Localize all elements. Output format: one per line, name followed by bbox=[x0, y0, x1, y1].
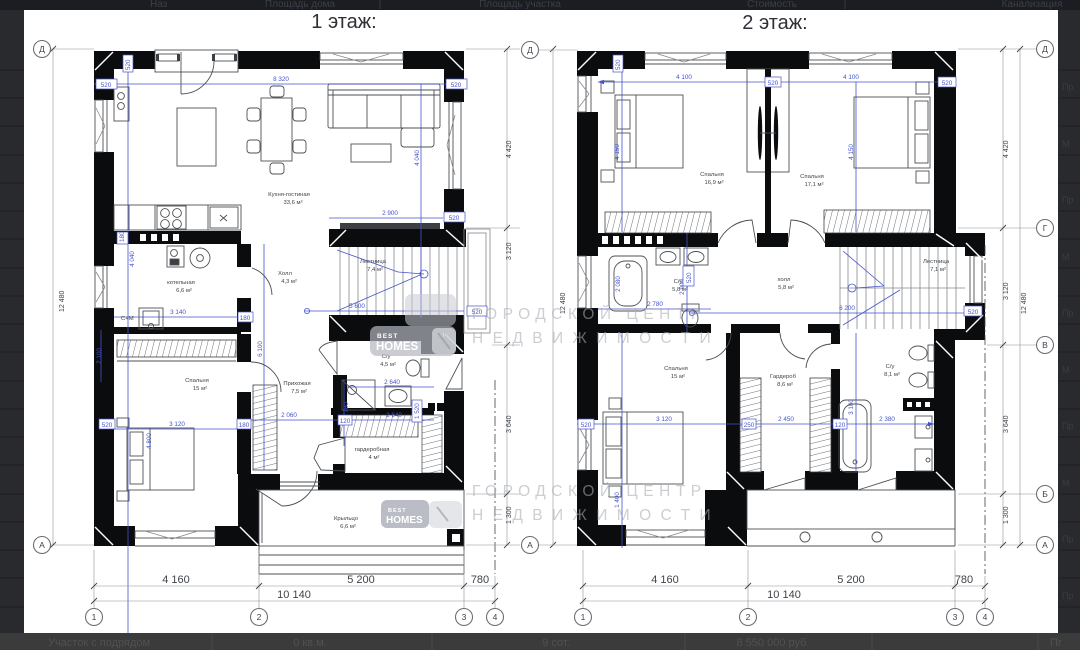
svg-text:120: 120 bbox=[340, 418, 351, 425]
svg-text:12 480: 12 480 bbox=[1021, 292, 1028, 314]
svg-text:НЕДВИЖИМОСТИ: НЕДВИЖИМОСТИ bbox=[472, 507, 720, 524]
svg-text:180: 180 bbox=[119, 231, 126, 242]
svg-text:9 сот.: 9 сот. bbox=[542, 637, 570, 649]
svg-text:8,1 м²: 8,1 м² bbox=[884, 372, 900, 378]
svg-text:2 640: 2 640 bbox=[384, 379, 400, 386]
svg-text:1 этаж:: 1 этаж: bbox=[311, 11, 376, 33]
svg-text:4 100: 4 100 bbox=[843, 74, 859, 81]
svg-text:Д: Д bbox=[39, 44, 45, 54]
svg-text:520: 520 bbox=[449, 215, 460, 222]
svg-text:1 300: 1 300 bbox=[1003, 506, 1010, 524]
svg-text:1: 1 bbox=[92, 612, 97, 622]
svg-text:ГОРОДСКОЙ ЦЕНТР: ГОРОДСКОЙ ЦЕНТР bbox=[472, 482, 707, 500]
svg-text:М: М bbox=[1062, 365, 1070, 375]
svg-text:А: А bbox=[39, 540, 45, 550]
svg-text:4: 4 bbox=[493, 612, 498, 622]
svg-text:М: М bbox=[1062, 478, 1070, 488]
svg-text:520: 520 bbox=[768, 80, 779, 87]
svg-text:12 480: 12 480 bbox=[59, 290, 66, 312]
svg-text:6,6 м²: 6,6 м² bbox=[176, 288, 192, 294]
svg-text:С+М: С+М bbox=[121, 316, 134, 322]
svg-text:520: 520 bbox=[125, 59, 132, 70]
svg-text:3 120: 3 120 bbox=[1003, 282, 1010, 300]
svg-text:4 040: 4 040 bbox=[414, 150, 421, 166]
svg-text:Крыльцо: Крыльцо bbox=[334, 516, 359, 522]
svg-text:Канализация: Канализация bbox=[1002, 0, 1063, 10]
svg-text:Спальня: Спальня bbox=[185, 378, 209, 384]
svg-text:8 550 000 руб.: 8 550 000 руб. bbox=[737, 637, 810, 649]
svg-text:гардеробная: гардеробная bbox=[355, 447, 390, 453]
svg-text:Пр: Пр bbox=[1062, 308, 1073, 318]
svg-text:4,5 м²: 4,5 м² bbox=[380, 362, 396, 368]
svg-text:3 640: 3 640 bbox=[1003, 415, 1010, 433]
svg-text:3 140: 3 140 bbox=[170, 309, 186, 316]
svg-text:8,6 м²: 8,6 м² bbox=[777, 382, 793, 388]
svg-text:BEST: BEST bbox=[377, 333, 398, 340]
svg-text:5 200: 5 200 bbox=[347, 574, 375, 586]
svg-text:2 450: 2 450 bbox=[778, 416, 794, 423]
svg-text:16,9 м²: 16,9 м² bbox=[704, 180, 723, 186]
svg-text:3: 3 bbox=[462, 612, 467, 622]
svg-text:6,6 м²: 6,6 м² bbox=[340, 524, 356, 530]
svg-text:НЕДВИЖИМОСТИ: НЕДВИЖИМОСТИ bbox=[472, 330, 720, 347]
svg-text:5 200: 5 200 bbox=[837, 574, 865, 586]
svg-text:Спальня: Спальня bbox=[664, 366, 688, 372]
svg-text:С/у: С/у bbox=[886, 364, 895, 370]
svg-text:15 м²: 15 м² bbox=[193, 386, 207, 392]
svg-text:520: 520 bbox=[686, 272, 693, 283]
svg-text:2 этаж:: 2 этаж: bbox=[742, 12, 807, 34]
svg-text:1: 1 bbox=[581, 612, 586, 622]
svg-text:4: 4 bbox=[983, 612, 988, 622]
svg-text:3 120: 3 120 bbox=[656, 416, 672, 423]
svg-text:BEST: BEST bbox=[388, 508, 407, 514]
svg-text:Участок с подрядом: Участок с подрядом bbox=[48, 637, 150, 649]
svg-text:520: 520 bbox=[581, 422, 592, 429]
svg-text:Пр: Пр bbox=[1062, 534, 1073, 544]
svg-text:120: 120 bbox=[835, 422, 846, 429]
svg-text:Пр: Пр bbox=[1062, 82, 1073, 92]
svg-text:7,1 м²: 7,1 м² bbox=[930, 267, 946, 273]
svg-text:15 м²: 15 м² bbox=[671, 374, 685, 380]
svg-text:4 150: 4 150 bbox=[848, 144, 855, 160]
svg-text:3 120: 3 120 bbox=[506, 242, 513, 260]
svg-text:2 100: 2 100 bbox=[96, 348, 103, 364]
svg-text:4 160: 4 160 bbox=[162, 574, 190, 586]
svg-text:5,8 м²: 5,8 м² bbox=[778, 285, 794, 291]
svg-text:2 060: 2 060 bbox=[281, 412, 297, 419]
svg-text:А: А bbox=[527, 540, 533, 550]
svg-text:Пр: Пр bbox=[1062, 591, 1073, 601]
svg-text:А: А bbox=[1042, 540, 1048, 550]
svg-text:котельная: котельная bbox=[167, 280, 195, 286]
svg-text:33,6 м²: 33,6 м² bbox=[283, 200, 302, 206]
svg-text:2: 2 bbox=[257, 612, 262, 622]
svg-text:4,3 м²: 4,3 м² bbox=[281, 279, 297, 285]
svg-text:520: 520 bbox=[615, 59, 622, 70]
svg-text:2: 2 bbox=[746, 612, 751, 622]
svg-text:Д: Д bbox=[527, 45, 533, 55]
svg-text:520: 520 bbox=[968, 309, 979, 316]
svg-text:М: М bbox=[1062, 139, 1070, 149]
svg-text:17,1 м²: 17,1 м² bbox=[804, 182, 823, 188]
svg-text:4 800: 4 800 bbox=[146, 433, 153, 449]
svg-text:780: 780 bbox=[955, 574, 973, 586]
svg-text:2 080: 2 080 bbox=[615, 276, 622, 292]
svg-text:250: 250 bbox=[744, 422, 755, 429]
svg-text:М: М bbox=[1062, 252, 1070, 262]
svg-text:HOMES: HOMES bbox=[386, 515, 423, 526]
svg-text:3 120: 3 120 bbox=[169, 421, 185, 428]
svg-text:2 900: 2 900 bbox=[382, 210, 398, 217]
svg-text:Площадь участка: Площадь участка bbox=[479, 0, 561, 10]
svg-text:HOMES: HOMES bbox=[376, 341, 419, 353]
svg-text:Лестница: Лестница bbox=[923, 259, 950, 265]
svg-text:7,5 м²: 7,5 м² bbox=[291, 389, 307, 395]
svg-text:Гардероб: Гардероб bbox=[770, 374, 797, 380]
svg-text:4 420: 4 420 bbox=[506, 140, 513, 158]
svg-text:4 150: 4 150 bbox=[614, 144, 621, 160]
svg-text:4 420: 4 420 bbox=[1003, 140, 1010, 158]
svg-text:Прихожая: Прихожая bbox=[283, 381, 310, 387]
svg-text:В: В bbox=[1042, 340, 1048, 350]
svg-text:4 160: 4 160 bbox=[651, 574, 679, 586]
svg-text:Стоимость: Стоимость bbox=[747, 0, 797, 10]
svg-text:Наз: Наз bbox=[150, 0, 168, 10]
svg-text:520: 520 bbox=[102, 422, 113, 429]
svg-text:10 140: 10 140 bbox=[767, 589, 801, 601]
svg-text:4 м²: 4 м² bbox=[369, 455, 380, 461]
svg-text:Пг: Пг bbox=[1050, 637, 1062, 649]
svg-text:3 100: 3 100 bbox=[848, 399, 855, 415]
svg-text:4 040: 4 040 bbox=[129, 251, 136, 267]
svg-text:10 140: 10 140 bbox=[277, 589, 311, 601]
svg-text:Спальня: Спальня bbox=[700, 172, 724, 178]
svg-text:Кухня-гостиная: Кухня-гостиная bbox=[268, 192, 310, 198]
svg-text:780: 780 bbox=[471, 574, 489, 586]
svg-text:2 640: 2 640 bbox=[386, 412, 402, 419]
svg-text:520: 520 bbox=[101, 82, 112, 89]
svg-text:3 640: 3 640 bbox=[506, 415, 513, 433]
svg-text:520: 520 bbox=[942, 80, 953, 87]
svg-text:Пр: Пр bbox=[1062, 195, 1073, 205]
svg-text:Спальня: Спальня bbox=[800, 174, 824, 180]
svg-text:Пр: Пр bbox=[1062, 421, 1073, 431]
svg-text:6 200: 6 200 bbox=[839, 305, 855, 312]
svg-text:Лестница: Лестница bbox=[360, 259, 387, 265]
svg-text:Д: Д bbox=[1042, 44, 1048, 54]
svg-text:Б: Б bbox=[1042, 489, 1048, 499]
svg-text:3: 3 bbox=[953, 612, 958, 622]
svg-text:1 520: 1 520 bbox=[414, 403, 421, 419]
svg-text:7,4 м²: 7,4 м² bbox=[367, 267, 383, 273]
svg-text:Площадь дома: Площадь дома bbox=[265, 0, 336, 10]
svg-text:Г: Г bbox=[1043, 223, 1048, 233]
svg-text:5 600: 5 600 bbox=[349, 303, 365, 310]
svg-text:ГОРОДСКОЙ ЦЕНТР: ГОРОДСКОЙ ЦЕНТР bbox=[472, 305, 707, 323]
svg-text:2 380: 2 380 bbox=[879, 416, 895, 423]
svg-text:180: 180 bbox=[239, 422, 250, 429]
svg-text:|: | bbox=[844, 0, 847, 10]
svg-text:180: 180 bbox=[240, 315, 251, 322]
svg-text:520: 520 bbox=[451, 82, 462, 89]
svg-text:|: | bbox=[379, 0, 382, 10]
svg-text:4 100: 4 100 bbox=[676, 74, 692, 81]
svg-text:8 320: 8 320 bbox=[273, 76, 289, 83]
svg-text:0 кв.м.: 0 кв.м. bbox=[293, 637, 327, 649]
svg-text:Холл: Холл bbox=[278, 271, 292, 277]
svg-text:6 100: 6 100 bbox=[257, 341, 264, 357]
svg-text:холл: холл bbox=[778, 277, 791, 283]
